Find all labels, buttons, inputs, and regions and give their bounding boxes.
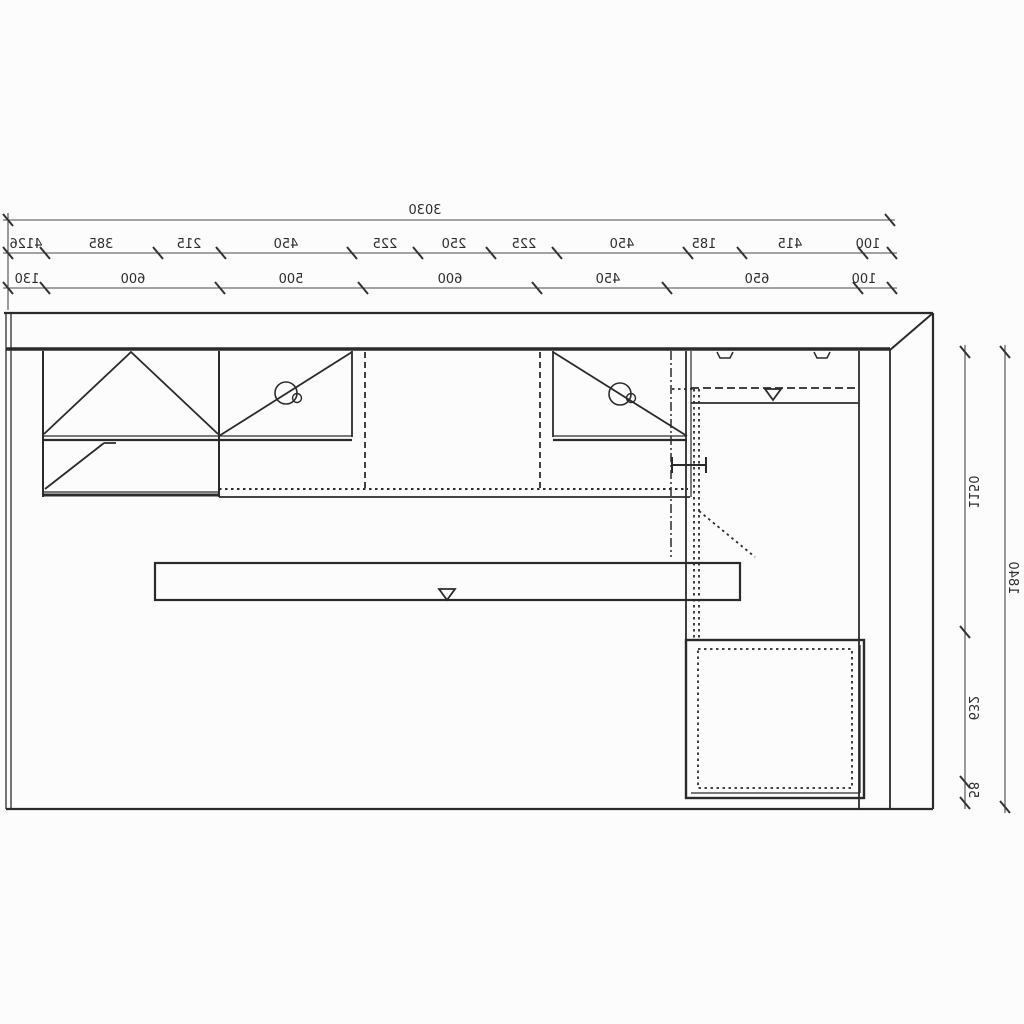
dim-lower-1: 600 xyxy=(121,272,146,287)
base-unit-hidden-inset xyxy=(698,649,852,788)
vdim-inner-1: 632 xyxy=(965,696,980,721)
cabinet-a-lower-door-swing xyxy=(45,443,116,489)
dim-upper-1: 385 xyxy=(89,237,114,252)
dim-upper-9: 415 xyxy=(778,237,803,252)
dim-upper-10: 100 xyxy=(856,237,881,252)
room-left-edge xyxy=(6,313,11,809)
dim-total: 3030 xyxy=(408,203,441,218)
dim-lower-2: 500 xyxy=(279,272,304,287)
base-unit-square xyxy=(686,640,864,798)
base-unit-outline xyxy=(686,640,864,798)
dimension-rows: 3030 4126 385 215 450 225 250 225 450 18… xyxy=(3,203,897,310)
hinge-clip-right-icon xyxy=(814,352,830,358)
scanned-drawing-page: 3030 4126 385 215 450 225 250 225 450 18… xyxy=(0,0,1024,1024)
dim-upper-4: 225 xyxy=(373,237,398,252)
island-triangle-icon xyxy=(439,589,455,600)
wall-corner-mitre xyxy=(890,313,933,350)
vdim-inner-0: 1150 xyxy=(965,475,980,508)
dim-lower-4: 450 xyxy=(596,272,621,287)
dim-upper-5: 250 xyxy=(442,237,467,252)
hinge-clip-left-icon xyxy=(717,352,733,358)
hidden-door-swing-diagonal xyxy=(699,511,755,557)
dim-lower-5: 650 xyxy=(745,272,770,287)
right-cabinet-shelf-triangle-icon xyxy=(765,389,781,400)
cabinet-b-door-diagonal xyxy=(219,352,352,436)
dim-upper-8: 185 xyxy=(692,237,717,252)
dim-upper-0: 4126 xyxy=(9,237,42,252)
base-unit-inner-edges xyxy=(691,645,860,793)
dim-lower-3: 600 xyxy=(438,272,463,287)
dim-lower-6: 100 xyxy=(852,272,877,287)
vdim-outer: 1840 xyxy=(1005,561,1020,594)
dim-upper-7: 450 xyxy=(610,237,635,252)
cabinet-a-door-swing-peak xyxy=(44,352,218,434)
dim-lower-0: 130 xyxy=(15,272,40,287)
wall-cabinet-run xyxy=(43,351,690,497)
dim-upper-3: 450 xyxy=(274,237,299,252)
dim-upper-2: 215 xyxy=(177,237,202,252)
island-outline xyxy=(155,563,740,600)
island-bar xyxy=(155,563,740,600)
connector-symbol-icon xyxy=(672,457,706,473)
vdim-inner-2: 58 xyxy=(965,782,980,799)
kitchen-plan-drawing: 3030 4126 385 215 450 225 250 225 450 18… xyxy=(0,0,1024,1024)
corner-run xyxy=(671,351,858,640)
dim-upper-6: 225 xyxy=(512,237,537,252)
cabinet-c-door-diagonal xyxy=(553,352,687,436)
vertical-dimensions: 1150 632 58 1840 xyxy=(960,345,1020,813)
